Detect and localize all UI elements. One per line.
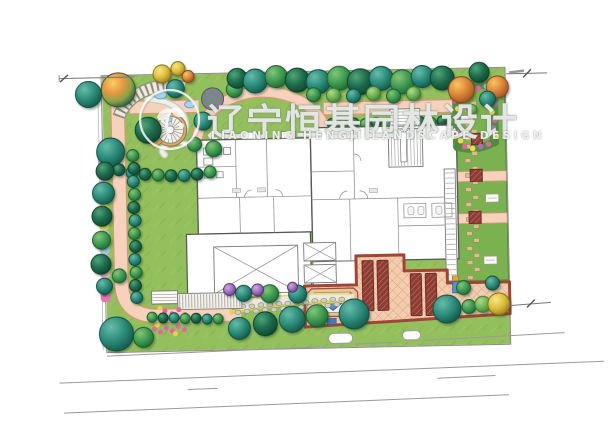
building-east <box>310 125 459 262</box>
tree <box>129 253 141 265</box>
fixture <box>408 207 414 215</box>
fixture <box>418 206 424 214</box>
tree <box>285 68 309 92</box>
tree <box>169 313 179 323</box>
tree <box>92 206 112 226</box>
stepping-stone <box>473 195 479 199</box>
pebble <box>258 303 264 308</box>
paving-node <box>470 169 482 181</box>
stepping-stone <box>466 202 472 206</box>
stepping-stone <box>473 224 479 228</box>
road-edge <box>59 361 604 383</box>
stepping-stone <box>465 122 471 126</box>
tree <box>346 89 360 103</box>
stepping-stone <box>467 246 473 250</box>
pebble <box>276 301 282 306</box>
tree <box>128 201 140 213</box>
tree <box>488 293 510 315</box>
tree <box>178 169 190 181</box>
porch <box>241 132 257 139</box>
tree <box>127 175 139 187</box>
stepping-stone <box>474 253 480 257</box>
stepping-stone <box>467 260 473 264</box>
tree <box>128 227 140 239</box>
tree <box>166 79 184 97</box>
label-tag <box>232 188 240 192</box>
stepping-stone <box>467 231 473 235</box>
label-tag <box>257 188 265 192</box>
tree <box>204 166 216 178</box>
pebble <box>312 299 318 304</box>
tree <box>406 87 420 101</box>
stepping-stone <box>465 158 471 162</box>
stair-rail <box>400 132 407 162</box>
checker-flowerbed <box>201 88 223 110</box>
curb-island <box>402 331 420 340</box>
label-tag <box>369 188 377 192</box>
porch <box>281 131 295 138</box>
tree <box>129 279 141 291</box>
tree <box>92 182 114 204</box>
stepping-stone <box>468 275 474 279</box>
pebble <box>339 297 345 302</box>
tree <box>235 285 251 301</box>
kitchen-fixture <box>204 158 213 165</box>
tree <box>326 88 340 102</box>
tree <box>130 266 142 278</box>
road-edge <box>64 395 509 413</box>
paving-node <box>471 133 482 144</box>
stepping-stone <box>466 136 472 140</box>
planter-strip <box>377 260 389 310</box>
tree <box>205 141 221 157</box>
pavilion-hub <box>166 126 174 134</box>
fixture <box>436 206 442 214</box>
pond <box>166 118 172 123</box>
pebble <box>285 301 291 306</box>
tree <box>182 70 194 82</box>
tree <box>448 76 475 103</box>
stepping-stone <box>472 151 478 155</box>
tree <box>251 284 263 296</box>
tree <box>165 170 177 182</box>
paving-node <box>469 211 481 223</box>
tree <box>96 278 112 294</box>
landscape-plan-scan: 辽宁恒基园林设计 LIAONING HENGJI LANDSCAPE DESIG… <box>0 0 608 430</box>
tree <box>265 65 287 87</box>
tree <box>133 327 153 347</box>
tree <box>128 162 140 174</box>
pebble <box>271 307 277 312</box>
stepping-stone <box>474 238 480 242</box>
pebble <box>330 297 336 302</box>
tree <box>462 299 476 313</box>
stepping-stone <box>474 267 480 271</box>
tree <box>96 162 114 180</box>
tree <box>456 281 470 295</box>
tree <box>213 314 223 324</box>
kitchen-fixture <box>224 148 231 155</box>
tree <box>433 295 462 324</box>
road-dash <box>437 376 495 379</box>
tree <box>191 313 201 323</box>
tree <box>147 312 157 322</box>
tree <box>127 149 139 161</box>
tree <box>467 104 477 114</box>
pebble <box>321 298 327 303</box>
curb-island <box>328 333 352 344</box>
tree <box>243 69 267 93</box>
garden-box <box>452 276 458 281</box>
tree <box>485 276 499 290</box>
tree <box>279 306 306 333</box>
tree <box>139 168 151 180</box>
tree <box>113 164 125 176</box>
plan-root <box>53 53 605 413</box>
tree <box>96 138 125 167</box>
tree <box>131 291 143 303</box>
bench <box>327 318 336 324</box>
tree <box>91 254 111 274</box>
pebble <box>244 309 250 314</box>
pond <box>154 91 166 99</box>
pebble <box>249 304 255 309</box>
tree <box>253 312 277 336</box>
tree <box>194 112 212 130</box>
tree <box>135 117 162 144</box>
tree <box>287 282 297 292</box>
tree <box>152 169 164 181</box>
tree <box>92 231 110 249</box>
pebble <box>325 303 331 308</box>
tree <box>112 269 126 283</box>
pond <box>185 101 195 108</box>
pebble <box>253 309 259 314</box>
tree <box>153 65 171 83</box>
tree <box>469 62 489 82</box>
tree <box>386 89 400 103</box>
tree <box>99 317 134 352</box>
tree <box>366 86 380 100</box>
tree <box>306 88 320 102</box>
planter-strip <box>410 274 422 316</box>
tree <box>306 305 328 327</box>
tree <box>187 137 201 151</box>
tree <box>129 214 141 226</box>
kitchen-fixture <box>216 172 223 178</box>
tree <box>223 283 235 295</box>
north-path-east <box>324 106 454 109</box>
side-gallery <box>444 169 457 281</box>
tree <box>75 81 102 108</box>
tree <box>228 317 250 339</box>
tree <box>129 240 141 252</box>
tree <box>180 313 190 323</box>
tree <box>158 313 168 323</box>
stepping-stone <box>471 129 477 133</box>
pebble <box>334 302 340 307</box>
tree <box>191 168 203 180</box>
tree <box>202 314 212 324</box>
pebble <box>235 310 241 315</box>
road-dash <box>188 388 218 389</box>
tree <box>339 299 370 330</box>
stepping-stone <box>466 187 472 191</box>
tree <box>128 188 140 200</box>
site-plan-drawing <box>0 0 608 430</box>
entry-steps <box>390 109 420 127</box>
tree <box>479 91 495 107</box>
